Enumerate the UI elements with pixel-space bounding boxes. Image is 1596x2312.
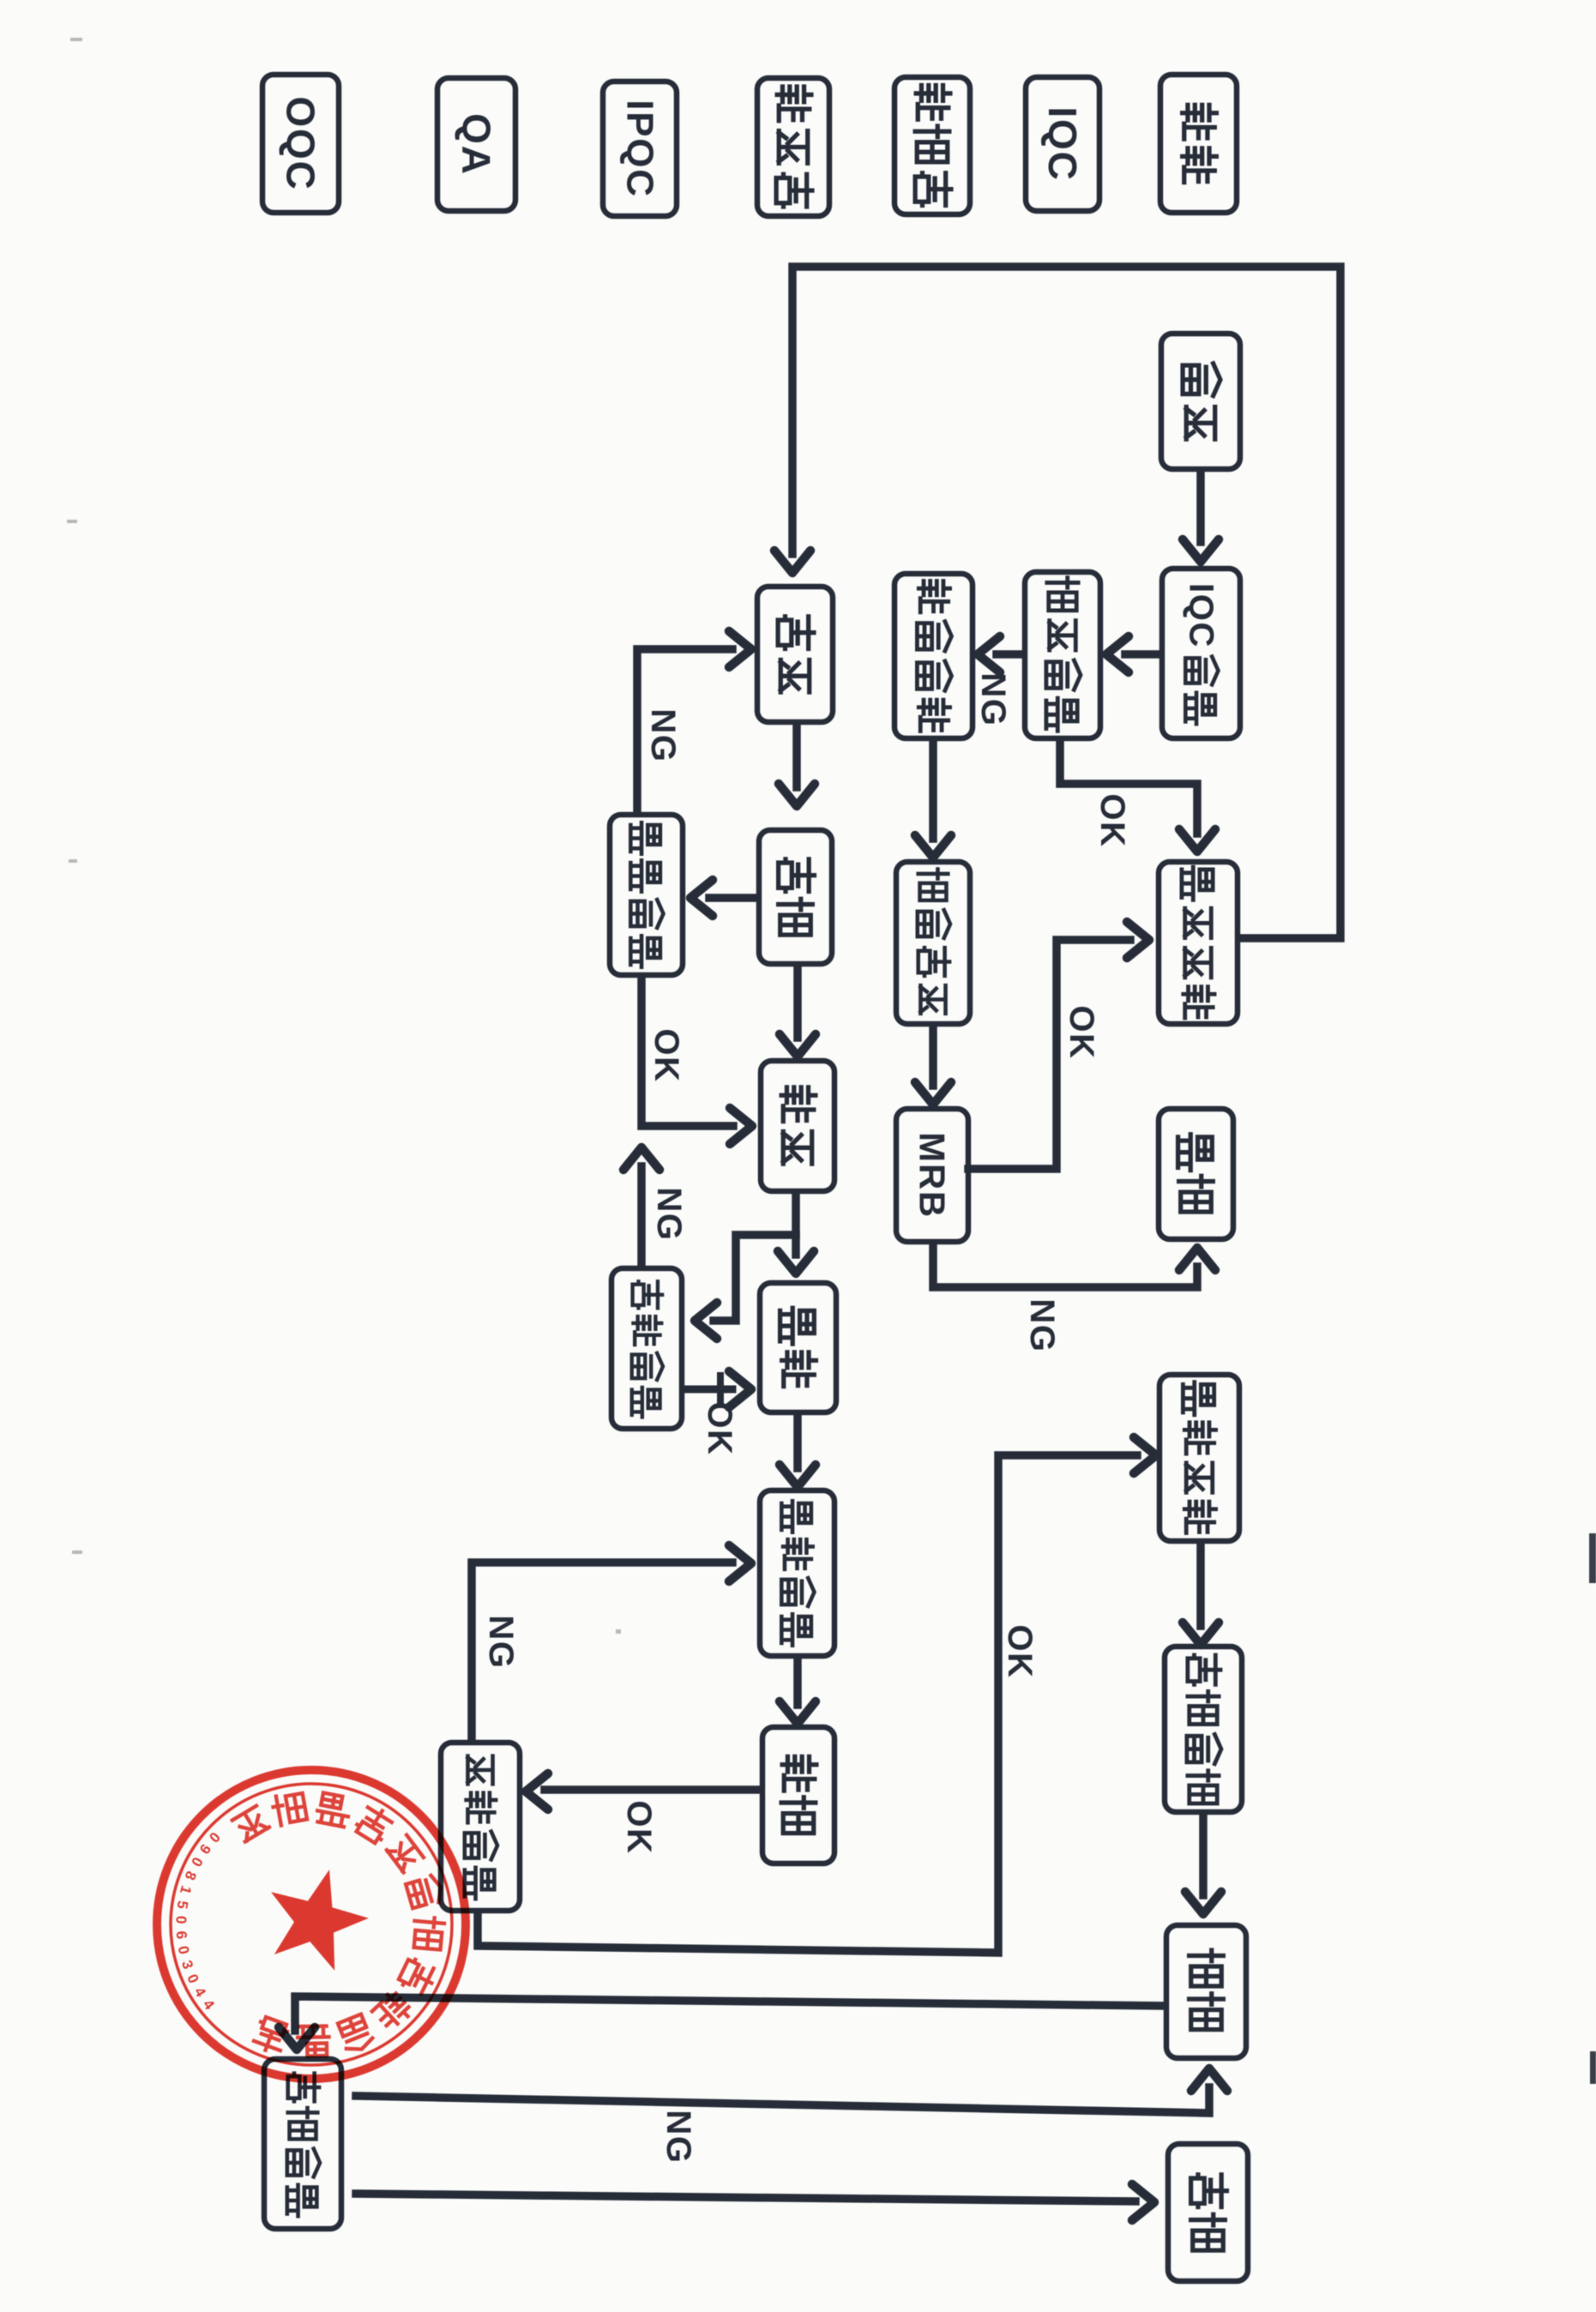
svg-text:OK: OK [1001,1624,1039,1678]
svg-text:0: 0 [188,1854,206,1869]
svg-text:QA: QA [455,113,499,176]
svg-text:NG: NG [644,708,682,762]
svg-text:0: 0 [206,1828,223,1845]
svg-text:NG: NG [482,1615,520,1669]
svg-text:OQC: OQC [279,96,323,190]
svg-text:OK: OK [620,1800,658,1854]
svg-text:MRB: MRB [912,1132,953,1219]
svg-text:NG: NG [974,672,1012,726]
svg-text:OK: OK [1063,1005,1100,1059]
svg-text:IQC: IQC [1040,106,1085,181]
svg-text:0: 0 [184,1972,202,1986]
svg-text:4: 4 [191,1984,209,2000]
svg-text:0: 0 [172,1916,189,1924]
svg-text:6: 6 [173,1930,190,1940]
svg-text:IPQC: IPQC [619,99,661,198]
svg-text:OK: OK [647,1028,685,1082]
svg-text:0: 0 [175,1944,192,1955]
svg-text:8: 8 [182,1869,200,1882]
svg-text:NG: NG [650,1187,688,1241]
svg-text:9: 9 [196,1841,214,1857]
svg-text:5: 5 [174,1900,191,1910]
svg-text:1: 1 [177,1884,195,1896]
svg-text:NG: NG [1023,1298,1061,1352]
svg-text:3: 3 [178,1959,196,1972]
svg-text:IQC: IQC [1183,583,1220,648]
svg-text:NG: NG [659,2110,697,2164]
svg-text:OK: OK [701,1401,738,1455]
svg-text:4: 4 [200,1996,218,2014]
svg-text:OK: OK [1093,793,1131,847]
